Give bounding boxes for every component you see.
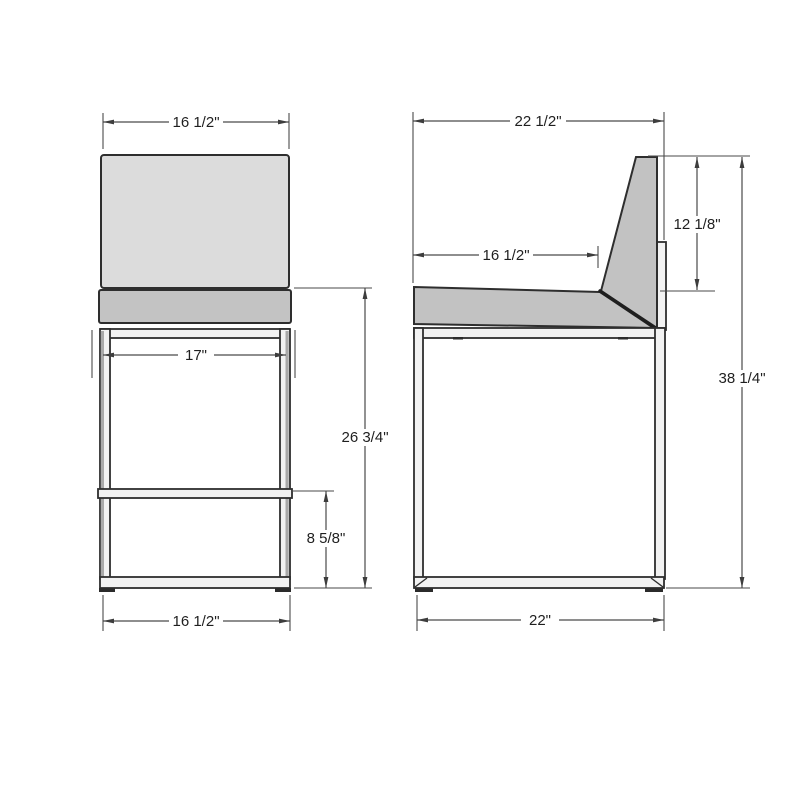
front-left-leg-shading (101, 331, 104, 577)
front-backrest (101, 155, 289, 288)
side-top-rail (414, 328, 664, 338)
drawing-canvas: 16 1/2" 17" 26 3/4" 8 5/8" 16 1/2" (0, 0, 800, 800)
side-rear-leg (655, 328, 665, 579)
side-rear-upright (657, 242, 666, 330)
dim-side-seat-depth: 16 1/2" (413, 246, 598, 268)
stool-dimension-drawing: 16 1/2" 17" 26 3/4" 8 5/8" 16 1/2" (0, 0, 800, 800)
side-front-foot (415, 588, 433, 592)
side-view (414, 157, 666, 592)
front-right-foot (275, 588, 291, 592)
dimension-label: 16 1/2" (172, 114, 219, 131)
side-bottom-rail (414, 577, 664, 588)
dimension-label: 8 5/8" (307, 530, 346, 547)
dimension-label: 17" (185, 347, 207, 364)
front-left-foot (99, 588, 115, 592)
dim-front-top-width: 16 1/2" (103, 113, 289, 149)
side-rail-bracket (618, 337, 628, 340)
dimension-label: 16 1/2" (482, 247, 529, 264)
dimension-label: 22 1/2" (514, 113, 561, 130)
front-view (98, 155, 292, 592)
dim-side-base-depth: 22" (417, 595, 664, 631)
front-seat (99, 290, 291, 323)
front-footrest-bar (98, 489, 292, 498)
front-right-leg-shading (286, 331, 289, 577)
dim-front-base-width: 16 1/2" (103, 595, 290, 631)
side-rail-bracket (453, 337, 463, 340)
dimension-label: 22" (529, 612, 551, 629)
side-front-leg (414, 328, 423, 579)
dimension-label: 12 1/8" (673, 216, 720, 233)
dim-front-footrest-height: 8 5/8" (292, 491, 351, 588)
dimension-label: 16 1/2" (172, 613, 219, 630)
front-top-rail (101, 329, 289, 338)
front-bottom-rail (100, 577, 290, 588)
side-rear-foot (645, 588, 663, 592)
dimension-label: 38 1/4" (718, 370, 765, 387)
dimension-label: 26 3/4" (341, 429, 388, 446)
